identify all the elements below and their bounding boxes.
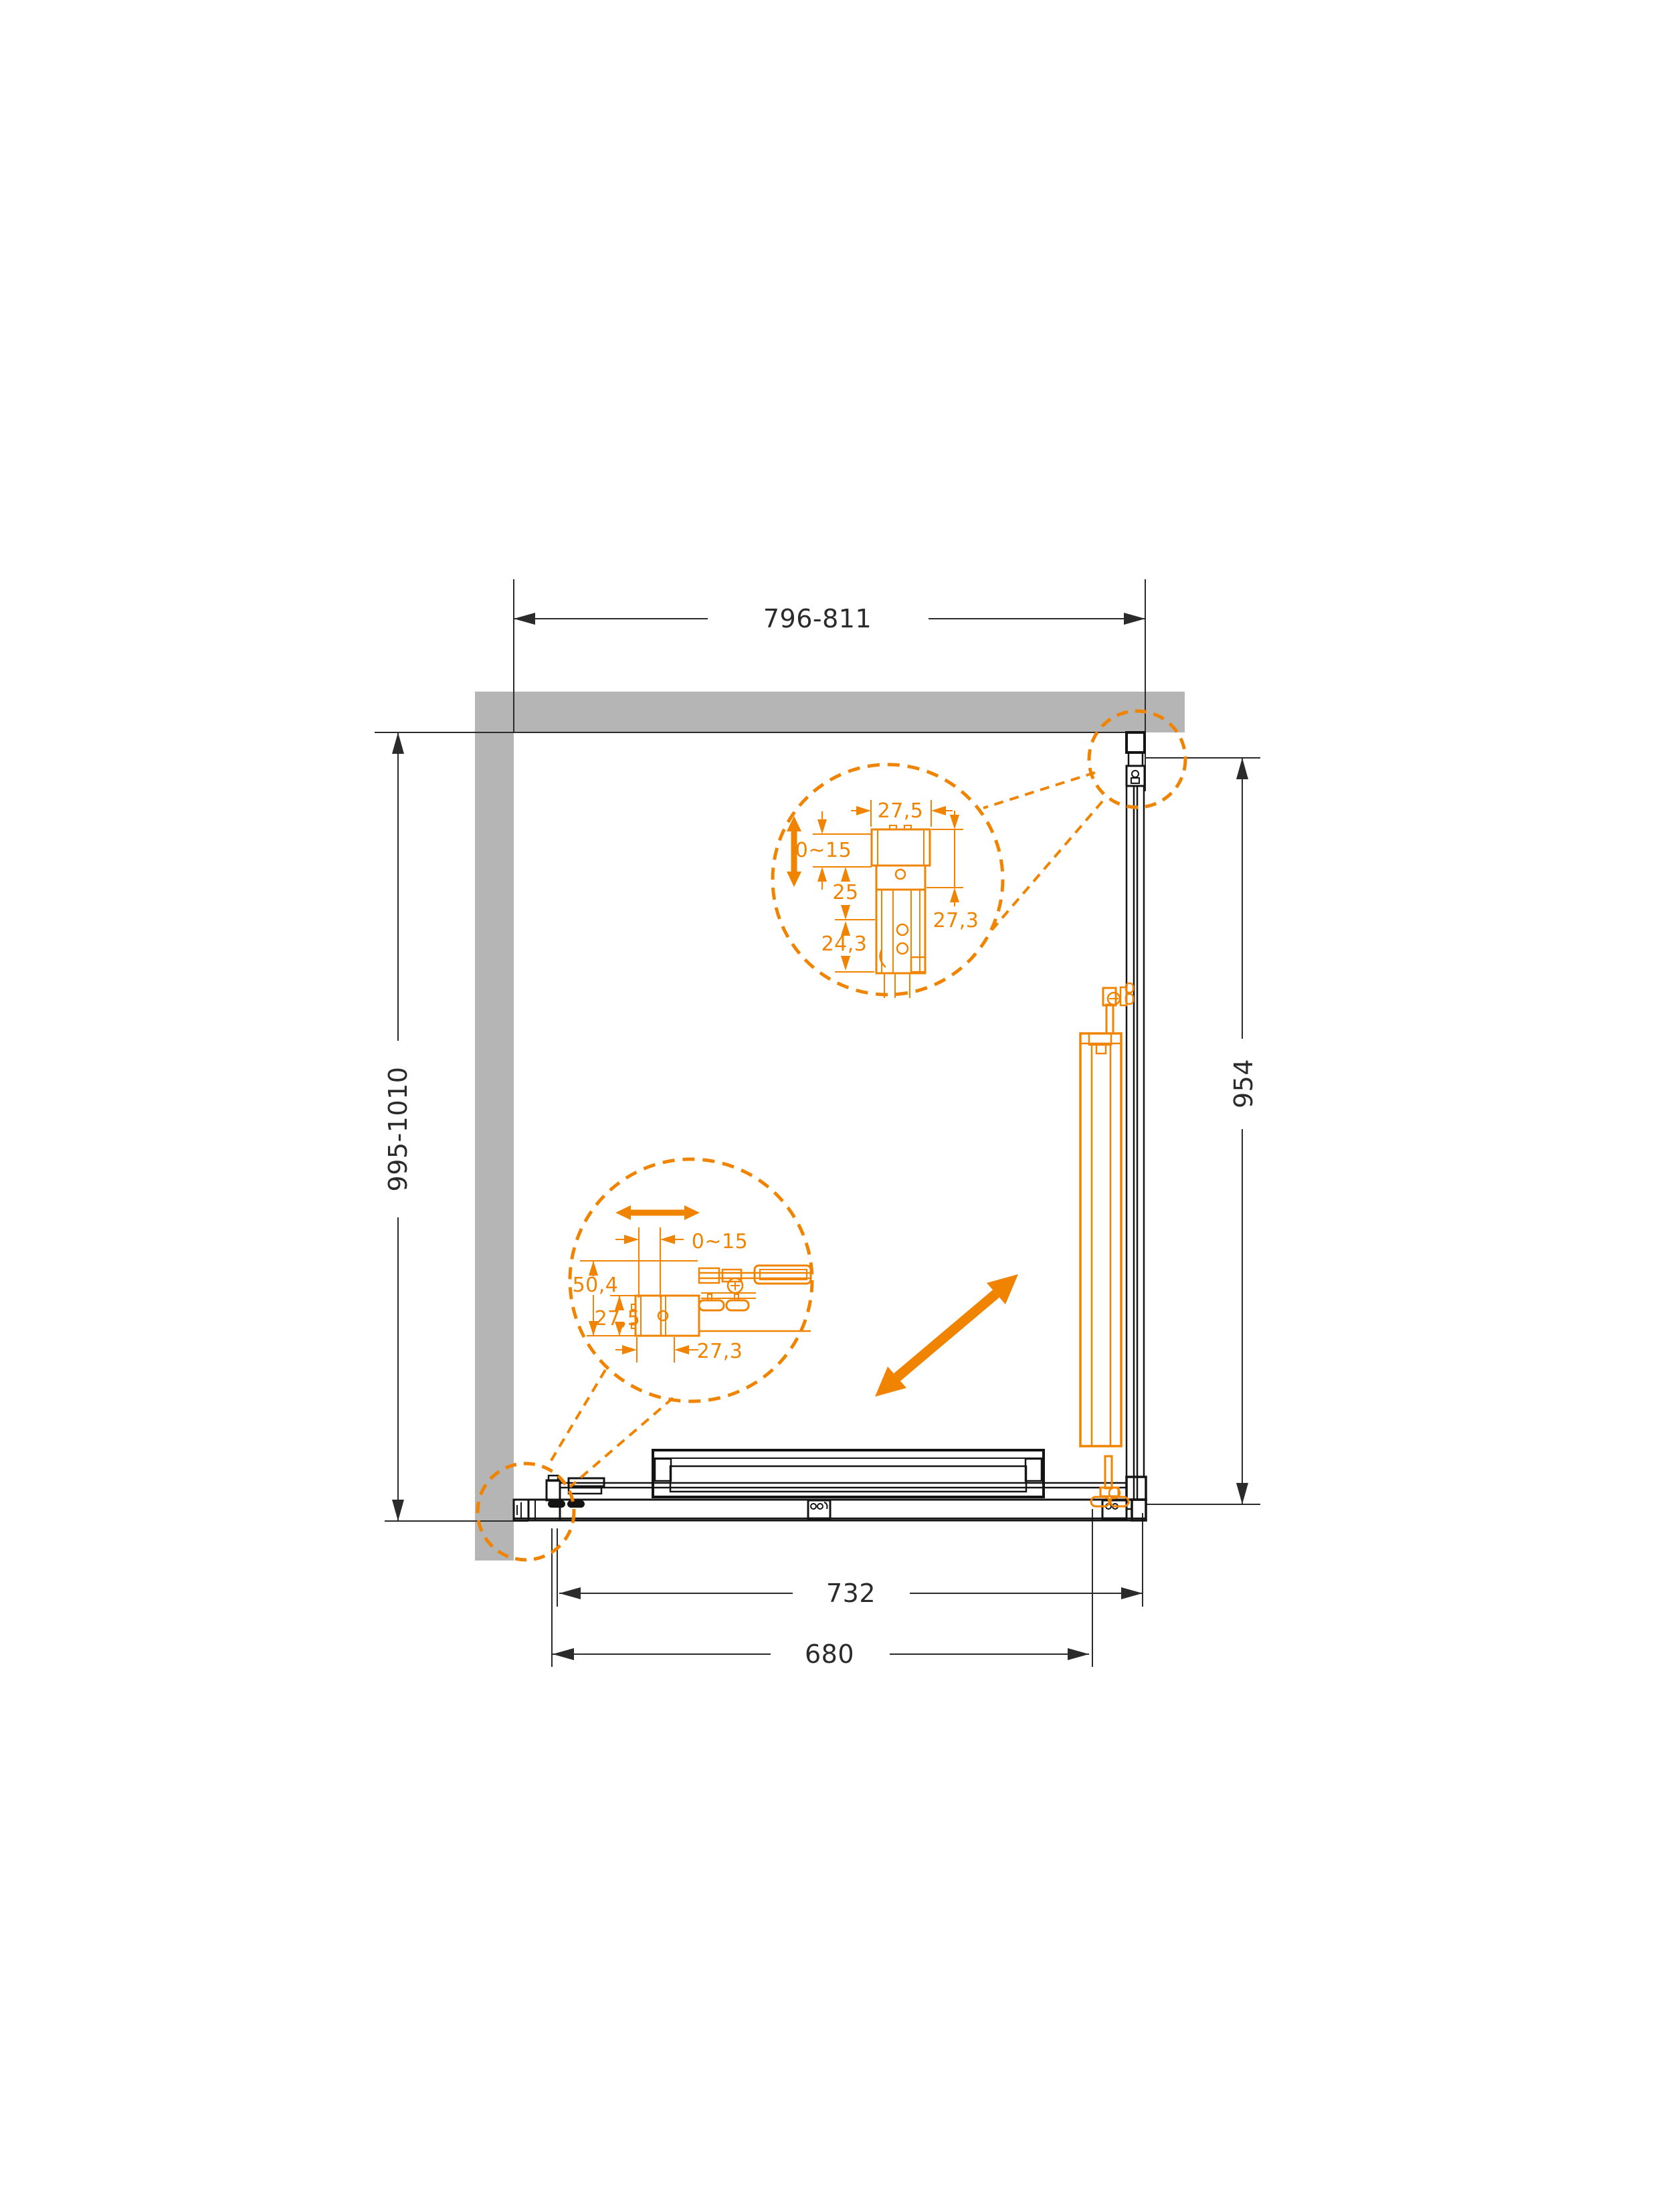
detail-bottom-drawing: 0~15 xyxy=(573,1205,811,1363)
shower-enclosure-plan-drawing: 796-811 995-1010 954 732 680 xyxy=(0,0,1659,2212)
room-walls xyxy=(475,692,1185,1561)
roller-icon xyxy=(699,1300,724,1310)
roller-carriage-section xyxy=(699,1266,811,1331)
wall-left xyxy=(475,692,514,1561)
roller-icon xyxy=(1091,1497,1109,1506)
wall-top xyxy=(475,692,1185,732)
dimension-door-width: 732 xyxy=(559,1579,1143,1608)
roller-left-2 xyxy=(567,1500,585,1508)
side-door-panel xyxy=(1080,1033,1121,1446)
detail-top-drawing: 27,5 0~15 25 24,3 xyxy=(787,799,979,998)
roller-left xyxy=(548,1500,565,1508)
callout-leader xyxy=(549,1370,605,1465)
dim-label-door-width: 732 xyxy=(826,1579,876,1608)
adjust-arrow-horizontal xyxy=(615,1205,700,1220)
sliding-side-door-orange xyxy=(1080,983,1133,1506)
dimension-opening-width: 680 xyxy=(553,1639,1089,1669)
dim-label-left-height: 995-1010 xyxy=(383,1067,413,1192)
side-panel-right-assembly xyxy=(1127,732,1146,1520)
detail-bottom-width-label: 27,3 xyxy=(697,1340,743,1363)
callout-leader xyxy=(992,801,1102,930)
sliding-door-panel xyxy=(653,1450,1044,1497)
detail-top-inset-label: 25 xyxy=(832,881,858,904)
dimension-right-panel: 954 xyxy=(1229,758,1258,1504)
detail-top-depth-label: 27,3 xyxy=(933,909,979,932)
rail-clip-right xyxy=(1102,1500,1127,1518)
detail-top-adjust-label: 0~15 xyxy=(795,839,852,862)
technical-drawing-page: 796-811 995-1010 954 732 680 xyxy=(0,0,1659,2212)
callout-leader xyxy=(570,1398,673,1487)
roller-carriage-top xyxy=(1103,983,1133,1033)
dim-label-top-width: 796-811 xyxy=(763,604,872,633)
callout-leader xyxy=(983,773,1095,808)
dimension-top-width: 796-811 xyxy=(514,604,1145,633)
sliding-door-bottom-assembly xyxy=(514,1450,1146,1520)
dimension-left-height: 995-1010 xyxy=(383,732,413,1521)
detail-bottom-adjust-label: 0~15 xyxy=(692,1230,748,1253)
rail-clip-middle xyxy=(808,1500,830,1518)
slide-direction-arrow xyxy=(875,1274,1018,1397)
detail-top-width-label: 27,5 xyxy=(878,799,924,823)
roller-icon xyxy=(726,1300,749,1310)
dim-label-right-panel: 954 xyxy=(1229,1059,1258,1108)
dim-label-opening-width: 680 xyxy=(805,1639,854,1669)
detail-bottom-height-label: 50,4 xyxy=(573,1274,619,1297)
detail-top-rail-label: 24,3 xyxy=(821,932,868,956)
detail-bottom-profile-label: 27,5 xyxy=(595,1307,641,1330)
